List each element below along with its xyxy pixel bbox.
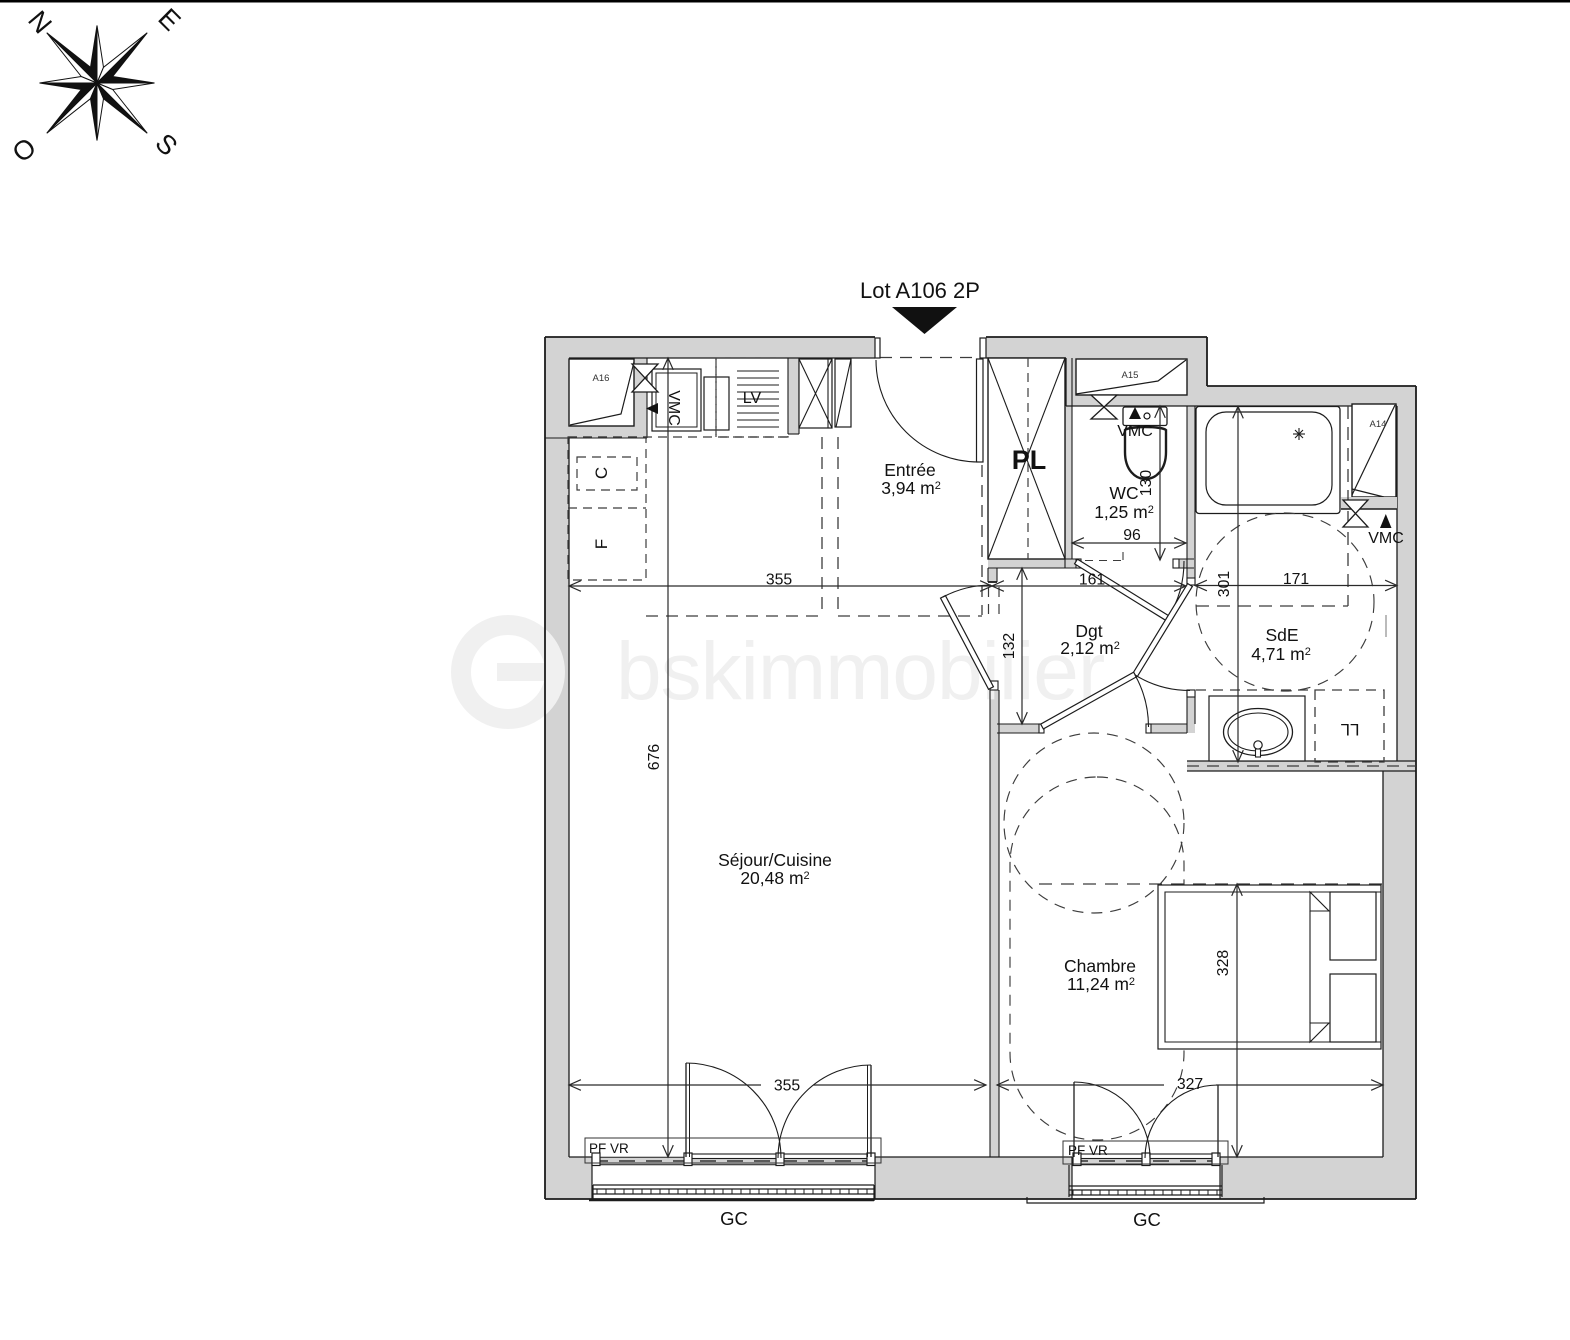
svg-text:2,12 m2: 2,12 m2 (1060, 638, 1120, 658)
svg-text:355: 355 (774, 1078, 801, 1095)
svg-text:171: 171 (1283, 571, 1310, 588)
svg-text:GC: GC (1133, 1209, 1161, 1230)
svg-text:327: 327 (1177, 1076, 1203, 1093)
svg-text:132: 132 (1001, 633, 1018, 659)
svg-text:3,94 m2: 3,94 m2 (881, 478, 941, 498)
svg-text:A15: A15 (1122, 370, 1139, 381)
svg-text:Chambre: Chambre (1064, 956, 1136, 976)
svg-text:1,25 m2: 1,25 m2 (1094, 502, 1154, 522)
svg-text:20,48 m2: 20,48 m2 (740, 868, 809, 888)
svg-text:Séjour/Cuisine: Séjour/Cuisine (718, 850, 832, 870)
svg-text:PL: PL (1012, 445, 1047, 475)
svg-text:Entrée: Entrée (884, 460, 936, 480)
svg-text:SdE: SdE (1265, 625, 1298, 645)
svg-text:161: 161 (1079, 572, 1106, 589)
svg-text:301: 301 (1216, 571, 1233, 598)
svg-text:Lot A106 2P: Lot A106 2P (860, 278, 980, 303)
svg-text:A16: A16 (593, 373, 610, 384)
svg-text:GC: GC (720, 1208, 748, 1229)
svg-text:A14: A14 (1370, 419, 1387, 430)
svg-text:130: 130 (1138, 470, 1155, 497)
svg-text:F: F (592, 539, 611, 549)
svg-text:676: 676 (646, 744, 663, 771)
svg-text:VMC: VMC (1117, 423, 1153, 440)
svg-text:PF VR: PF VR (589, 1141, 629, 1156)
svg-text:LV: LV (743, 390, 762, 407)
svg-text:WC: WC (1109, 483, 1138, 503)
svg-text:4,71 m2: 4,71 m2 (1251, 644, 1311, 664)
svg-text:C: C (592, 467, 611, 479)
svg-text:VMC: VMC (1368, 530, 1404, 547)
svg-text:PF VR: PF VR (1068, 1143, 1108, 1158)
svg-text:328: 328 (1215, 950, 1232, 977)
svg-text:LL: LL (1341, 720, 1360, 739)
svg-text:96: 96 (1123, 527, 1141, 544)
svg-text:11,24 m2: 11,24 m2 (1067, 974, 1135, 994)
svg-text:355: 355 (766, 572, 793, 589)
svg-text:bskimmobilier: bskimmobilier (616, 626, 1104, 717)
